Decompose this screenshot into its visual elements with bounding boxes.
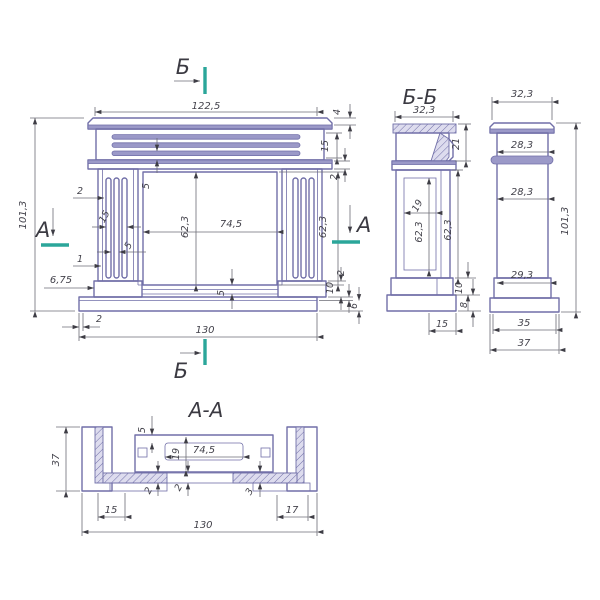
section-bb-view: Б-Б xyxy=(387,85,481,335)
left-plinth-block xyxy=(94,281,142,297)
dim-side-plinth-width: 35 xyxy=(518,318,531,329)
bb-base xyxy=(387,295,456,311)
dim-side-body-width: 28,3 xyxy=(511,187,533,198)
base-plate xyxy=(79,297,317,311)
aa-right-plinth-footprint xyxy=(253,483,310,491)
section-aa-view: А-А xyxy=(51,398,317,536)
firebox-opening xyxy=(143,172,277,285)
dim-aa-wall-thickness: 5 xyxy=(137,427,148,433)
dim-side-neck-width: 28,3 xyxy=(511,140,533,151)
section-aa-title: А-А xyxy=(187,398,224,422)
dim-aa-depth: 37 xyxy=(51,453,62,466)
dim-base-inset: 2 xyxy=(96,314,102,325)
dim-aa-left-ledge: 15 xyxy=(105,505,118,516)
side-torus-ring xyxy=(491,156,553,164)
section-marker-a-left: А xyxy=(34,208,69,245)
dim-bb-plinth-height: 10 xyxy=(454,282,465,294)
dim-side-base-width: 37 xyxy=(518,338,531,349)
aa-sill-cut-right xyxy=(233,473,297,483)
shelf-bottom-band-fill xyxy=(88,160,332,164)
side-plinth xyxy=(494,278,551,298)
dim-base-width: 130 xyxy=(195,325,214,336)
aa-left-wall-cut xyxy=(95,427,103,483)
dim-side-cap-width: 32,3 xyxy=(511,89,533,100)
dim-aa-gap-left: 2 xyxy=(143,486,156,497)
dim-bb-top-width: 32,3 xyxy=(413,105,435,116)
marker-a-right-label: А xyxy=(355,213,371,237)
dim-groove-offset: 5 xyxy=(141,183,152,189)
dim-front-height: 101,3 xyxy=(18,201,29,230)
side-base xyxy=(490,298,559,312)
marker-b-bottom-label: Б xyxy=(174,359,188,383)
aa-left-plinth-footprint xyxy=(110,483,167,491)
dim-opening-height-right: 62,3 xyxy=(318,216,329,238)
marker-b-top-label: Б xyxy=(176,55,190,79)
dim-side-height: 101,3 xyxy=(560,207,571,236)
side-view: 32,3 28,3 28,3 101,3 29,3 35 37 xyxy=(490,89,581,354)
front-view: 122,5 101,3 4 15 2 5 62,3 74,5 62,3 2 15… xyxy=(18,55,371,383)
dim-opening-height: 62,3 xyxy=(180,216,191,238)
dim-aa-gap-center: 2 xyxy=(173,483,186,494)
dim-front-width-top: 122,5 xyxy=(192,101,221,112)
dim-plinth-offset: 6,75 xyxy=(50,275,72,286)
dim-bb-ledge-width: 15 xyxy=(436,319,448,330)
left-pilaster xyxy=(94,169,142,297)
technical-drawing-page: 122,5 101,3 4 15 2 5 62,3 74,5 62,3 2 15… xyxy=(0,0,600,600)
dim-sill-height: 5 xyxy=(216,290,227,296)
dim-shelf-thickness: 4 xyxy=(332,109,343,115)
marker-a-left-label: А xyxy=(34,218,50,242)
right-plinth-block xyxy=(278,281,326,297)
fireplace-mantel-drawing: 122,5 101,3 4 15 2 5 62,3 74,5 62,3 2 15… xyxy=(0,0,600,600)
dim-bb-shelf-height: 21 xyxy=(451,138,462,150)
dim-bb-body-height: 62,3 xyxy=(443,219,454,240)
dim-aa-gap-right: 3 xyxy=(244,487,257,498)
dim-bb-cavity-height: 62,3 xyxy=(414,221,425,242)
dim-base-height: 6 xyxy=(349,303,360,309)
dim-aa-inner-depth: 19 xyxy=(171,448,182,460)
section-marker-b-top: Б xyxy=(174,55,205,94)
side-column-body xyxy=(497,133,548,278)
dim-band-height: 2 xyxy=(329,174,340,180)
aa-sill-cut-left xyxy=(103,473,167,483)
dim-base-step: 2 xyxy=(336,270,347,276)
bb-crown-cut xyxy=(431,133,449,161)
frieze-groove xyxy=(112,135,300,140)
dim-plinth-height: 10 xyxy=(325,282,336,294)
aa-right-square xyxy=(261,448,270,457)
dim-frieze-height: 15 xyxy=(320,140,331,152)
dim-aa-overall-width: 130 xyxy=(193,520,212,531)
dim-side-bottom-width: 29,3 xyxy=(511,270,533,281)
dim-bb-base-height: 8 xyxy=(459,302,470,308)
dim-groove-width: 1 xyxy=(77,254,83,265)
bb-shelf-cut xyxy=(393,124,456,133)
dim-bb-cavity-width: 19 xyxy=(410,198,425,214)
bb-plinth xyxy=(391,278,453,295)
dim-aa-right-ledge: 17 xyxy=(286,505,299,516)
dim-opening-width: 74,5 xyxy=(220,219,242,230)
frieze-groove xyxy=(112,143,300,148)
aa-left-square xyxy=(138,448,147,457)
dim-flute-width: 2 xyxy=(77,186,83,197)
dim-aa-opening-width: 74,5 xyxy=(193,445,215,456)
section-marker-b-bottom: Б xyxy=(174,339,205,383)
frieze-groove xyxy=(112,151,300,156)
